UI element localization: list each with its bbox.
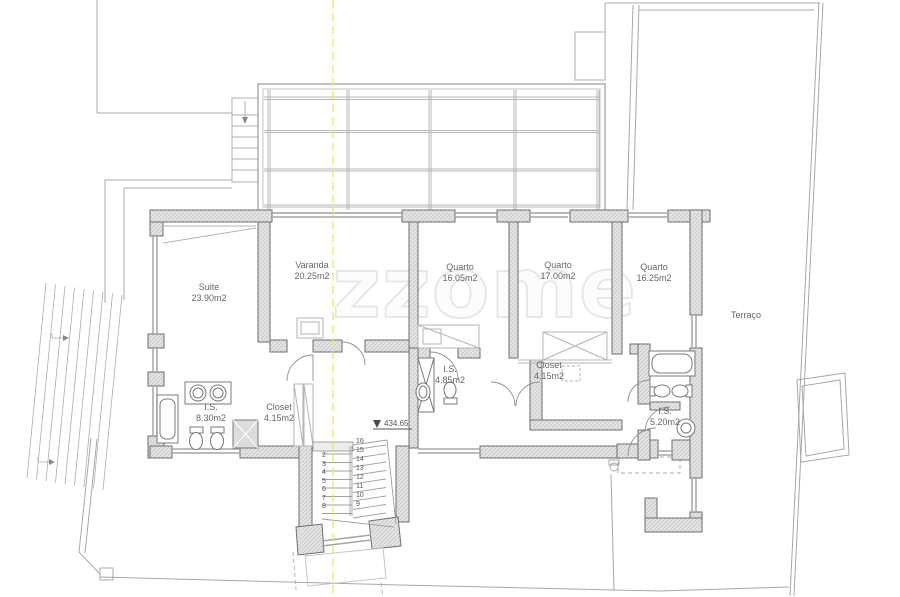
elevation-value: 434.65 <box>384 419 408 428</box>
stair-number: 4 <box>322 469 326 476</box>
building-walls <box>148 210 710 555</box>
exterior-stair <box>232 98 258 182</box>
room-area: 23.90m2 <box>191 293 226 304</box>
stair-number: 15 <box>356 447 364 454</box>
toilet-bidet-left <box>190 427 225 450</box>
bathtub-left <box>157 395 178 443</box>
room-label-is-right: I.S. 5.20m2 <box>650 406 680 428</box>
room-name: Suite <box>191 282 226 293</box>
door-arcs <box>287 342 670 456</box>
room-name: I.S. <box>650 406 680 417</box>
room-label-quarto-3: Quarto 16.25m2 <box>636 262 671 284</box>
stair-number: 8 <box>322 503 326 510</box>
stair-number: 9 <box>356 501 360 508</box>
double-sink-counter <box>185 382 231 404</box>
room-label-suite: Suite 23.90m2 <box>191 282 226 304</box>
floor-plan-canvas: zzome <box>0 0 900 597</box>
room-name: I.S. <box>196 402 226 413</box>
stair-number: 10 <box>356 492 364 499</box>
stair-number: 3 <box>322 461 326 468</box>
room-area: 8.30m2 <box>196 413 226 424</box>
room-label-quarto-1: Quarto 16.05m2 <box>442 262 477 284</box>
stair-number: 14 <box>356 456 364 463</box>
room-area: 5.20m2 <box>650 417 680 428</box>
room-area: 17.00m2 <box>540 271 575 282</box>
room-area: 4.85m2 <box>435 375 465 386</box>
room-area: 16.25m2 <box>636 273 671 284</box>
room-name: Closet <box>264 402 294 413</box>
room-name: Terraço <box>731 310 761 321</box>
room-area: 20.25m2 <box>294 271 329 282</box>
stair-number: 6 <box>322 486 326 493</box>
room-label-closet-middle: Closet 4.15m2 <box>534 360 564 382</box>
stair-number: 2 <box>322 452 326 459</box>
stair-number: 16 <box>356 438 364 445</box>
stair-number: 13 <box>356 465 364 472</box>
room-area: 4.15m2 <box>534 371 564 382</box>
pergola-grid <box>258 84 605 213</box>
room-label-is-left: I.S. 8.30m2 <box>196 402 226 424</box>
stair-number: 7 <box>322 495 326 502</box>
stair-number: 11 <box>356 483 363 490</box>
room-label-closet-left: Closet 4.15m2 <box>264 402 294 424</box>
stair-number: 12 <box>356 474 364 481</box>
room-name: Closet <box>534 360 564 371</box>
stair-number: 5 <box>322 478 326 485</box>
floor-plan-drawing <box>0 0 900 597</box>
room-label-terrace: Terraço <box>731 310 761 321</box>
room-name: Varanda <box>294 260 329 271</box>
room-label-quarto-2: Quarto 17.00m2 <box>540 260 575 282</box>
bathroom-fixtures <box>157 351 695 450</box>
room-label-is-middle: I.S. 4.85m2 <box>435 364 465 386</box>
room-name: I.S. <box>435 364 465 375</box>
shower-left <box>233 420 258 448</box>
room-label-varanda: Varanda 20.25m2 <box>294 260 329 282</box>
room-area: 4.15m2 <box>264 413 294 424</box>
ramp-lines <box>27 283 122 490</box>
bathtub-right <box>649 351 695 376</box>
room-area: 16.05m2 <box>442 273 477 284</box>
room-name: Quarto <box>636 262 671 273</box>
room-name: Quarto <box>442 262 477 273</box>
room-name: Quarto <box>540 260 575 271</box>
bidet-toilet-right <box>650 385 692 397</box>
